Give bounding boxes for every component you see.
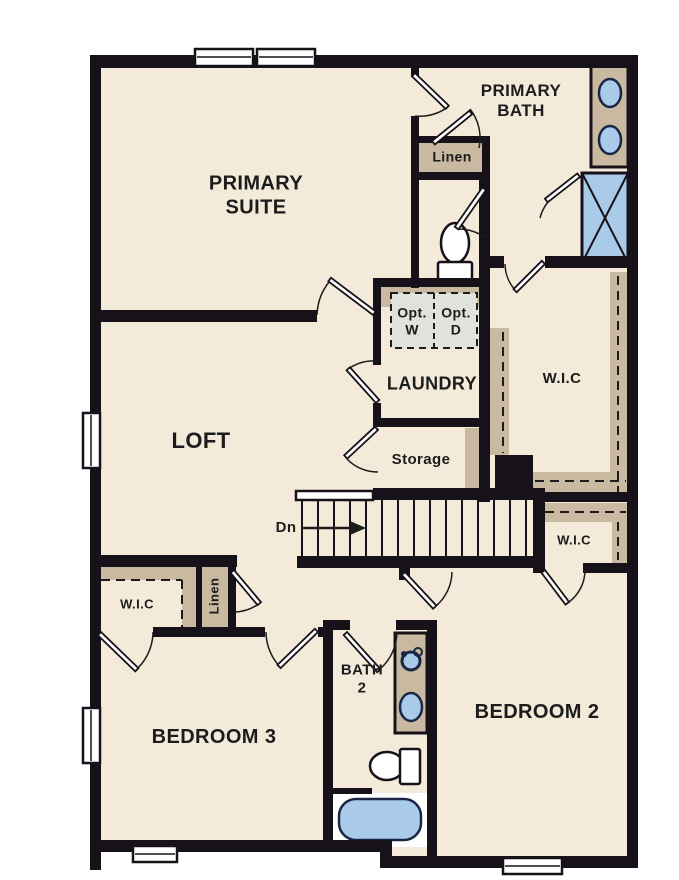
dryer-label: Opt.D — [437, 304, 475, 337]
sink-icon — [599, 126, 621, 154]
window-icon — [133, 846, 177, 862]
bathtub-icon — [333, 793, 427, 847]
closet-label-wic-hall: W.I.C — [557, 532, 591, 547]
toilet-icon — [370, 749, 420, 784]
window-icon — [195, 49, 253, 66]
room-label-bedroom-3: BEDROOM 3 — [124, 726, 304, 750]
room-label-loft: LOFT — [171, 428, 230, 454]
floor-plan-drawing — [0, 0, 679, 880]
toilet-icon — [438, 223, 472, 280]
room-label-laundry: LAUNDRY — [372, 373, 492, 394]
closet-label-linen-hall: Linen — [206, 578, 221, 615]
shower-icon — [582, 173, 628, 263]
closet-label-linen-bath: Linen — [432, 149, 471, 166]
window-icon — [257, 49, 315, 66]
room-label-bedroom-2: BEDROOM 2 — [447, 701, 627, 725]
closet-label-wic-primary: W.I.C — [543, 370, 582, 388]
stairs-down-label: Dn — [276, 519, 297, 537]
room-label-primary-suite: PRIMARY SUITE — [188, 172, 324, 219]
window-icon — [83, 413, 100, 468]
window-icon — [503, 858, 562, 874]
sink-icon — [599, 79, 621, 107]
room-label-primary-bath: PRIMARY BATH — [465, 81, 577, 121]
washer-label: Opt.W — [393, 304, 431, 337]
sink-icon — [400, 693, 422, 721]
closet-label-wic-bedroom3: W.I.C — [120, 596, 154, 611]
stair-railing — [296, 491, 373, 500]
room-label-storage: Storage — [392, 451, 451, 469]
floor-plan: PRIMARY SUITE PRIMARY BATH Linen LAUNDRY… — [0, 0, 679, 880]
window-icon — [83, 708, 100, 763]
room-label-bath-2: BATH 2 — [338, 661, 386, 696]
